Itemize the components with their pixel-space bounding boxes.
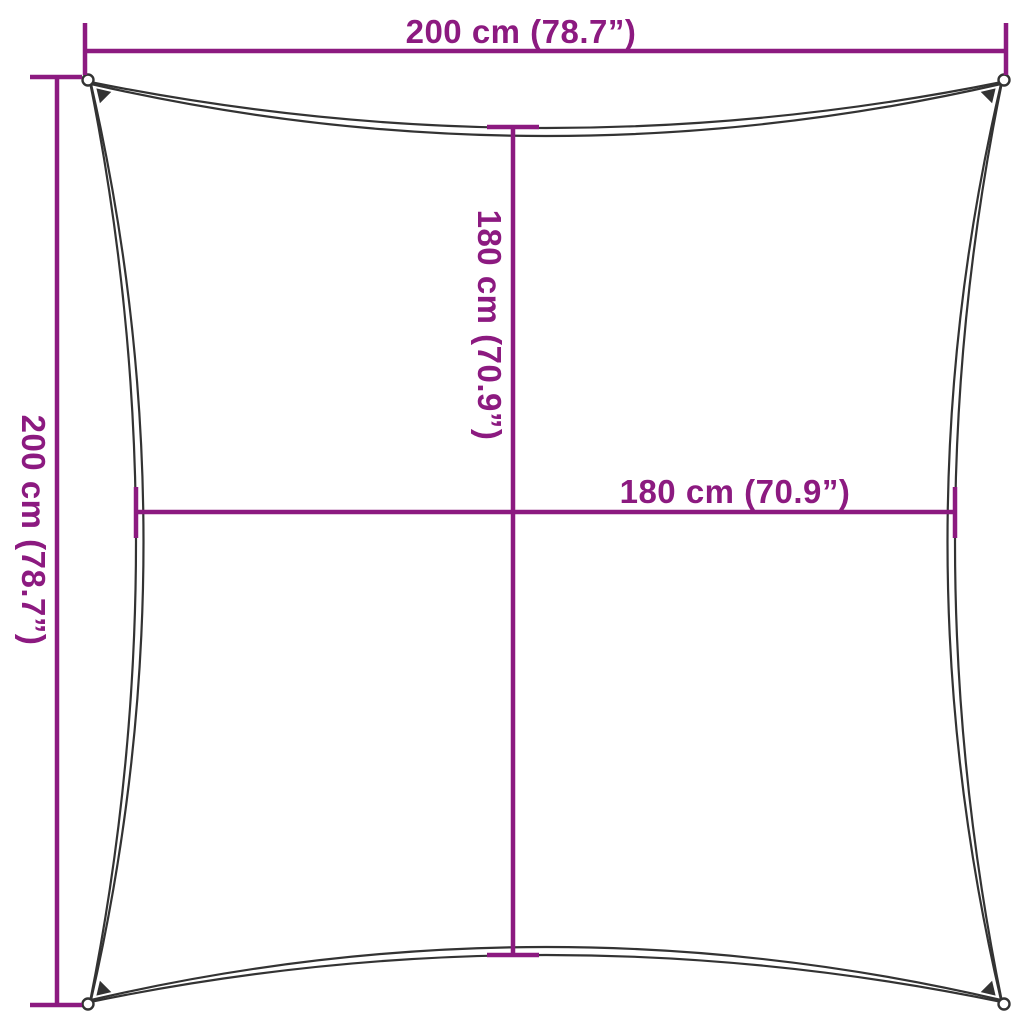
- dimension-label-inner-vertical: 180 cm (70.9”): [471, 210, 508, 441]
- sail-outline-outer: [90, 82, 1002, 1002]
- grommet-ring-icon: [999, 999, 1010, 1010]
- dimension-top: 200 cm (78.7”): [85, 13, 1006, 75]
- grommet-ring-icon: [999, 75, 1010, 86]
- dimension-left: 200 cm (78.7”): [15, 77, 82, 1005]
- dimension-label-inner-horizontal: 180 cm (70.9”): [620, 473, 851, 510]
- diagram-canvas: 200 cm (78.7”) 200 cm (78.7”) 180 cm (70…: [0, 0, 1024, 1024]
- dimension-label-left: 200 cm (78.7”): [15, 415, 52, 646]
- shade-sail-dimension-diagram: 200 cm (78.7”) 200 cm (78.7”) 180 cm (70…: [0, 0, 1024, 1024]
- grommet-ring-icon: [83, 75, 94, 86]
- dimension-label-top: 200 cm (78.7”): [406, 13, 637, 50]
- sail: [83, 75, 1010, 1010]
- grommet-ring-icon: [83, 999, 94, 1010]
